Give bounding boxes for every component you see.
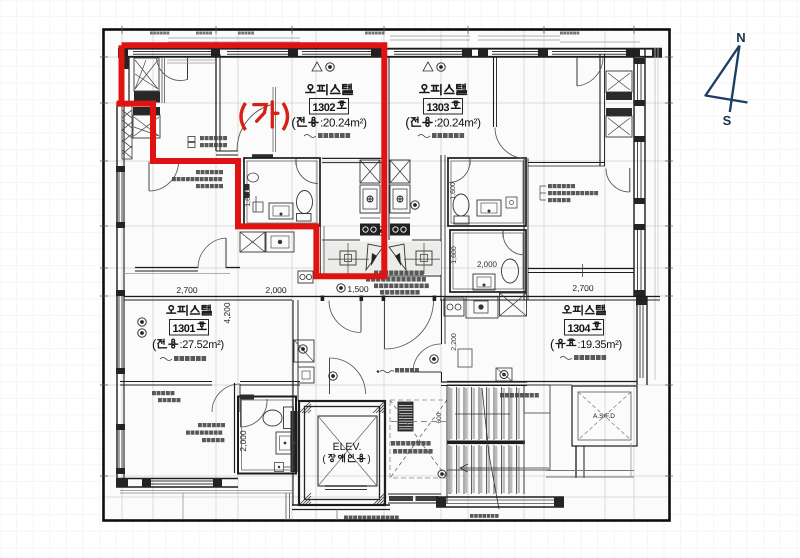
svg-text:N: N	[736, 30, 745, 45]
svg-text:S: S	[723, 113, 732, 128]
